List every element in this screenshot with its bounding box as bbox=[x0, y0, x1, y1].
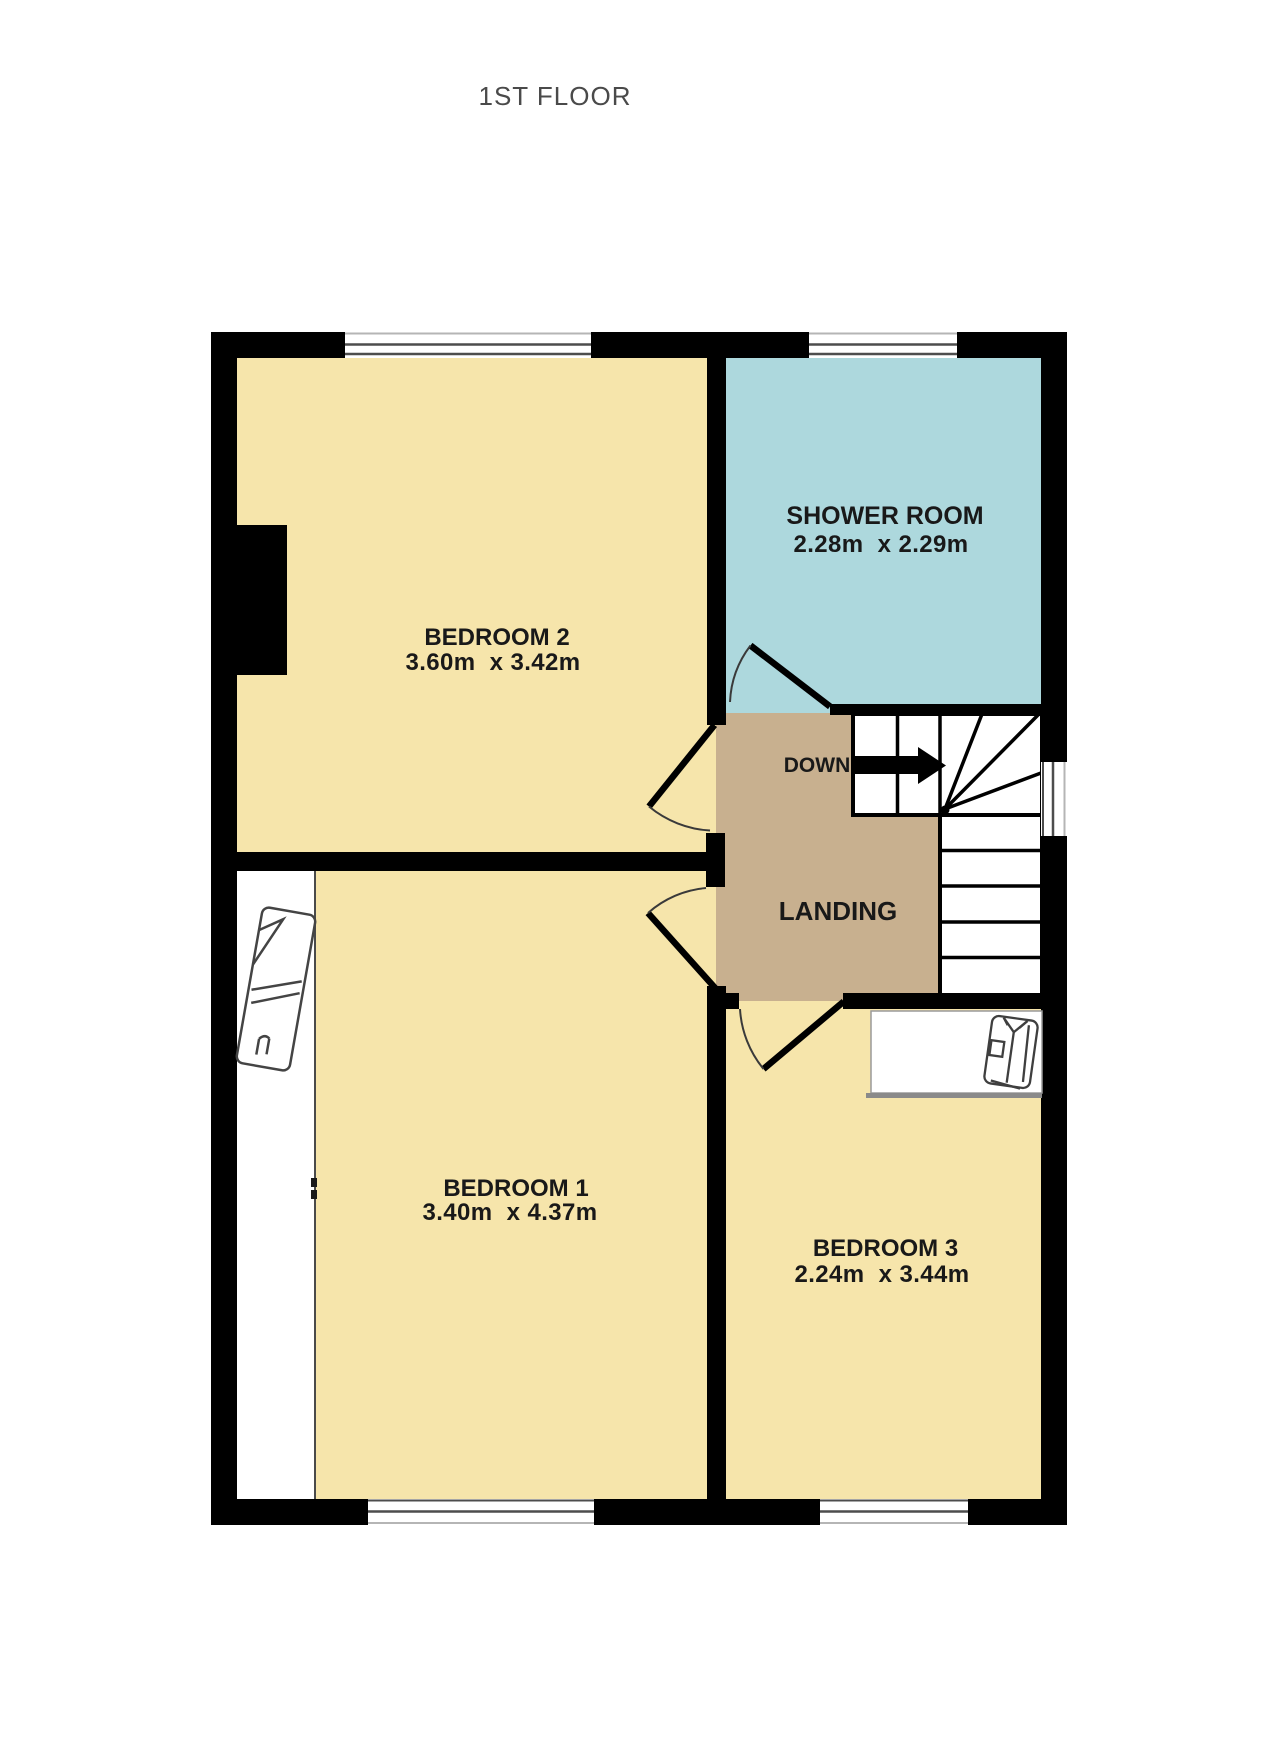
svg-text:BEDROOM 2: BEDROOM 2 bbox=[424, 624, 569, 651]
svg-text:3.60m x 3.42m: 3.60m x 3.42m bbox=[405, 649, 580, 676]
svg-text:2.24m x 3.44m: 2.24m x 3.44m bbox=[794, 1261, 969, 1288]
svg-text:2.28m x 2.29m: 2.28m x 2.29m bbox=[793, 531, 968, 558]
svg-text:BEDROOM 1: BEDROOM 1 bbox=[443, 1175, 588, 1202]
svg-text:SHOWER ROOM: SHOWER ROOM bbox=[786, 502, 983, 530]
svg-text:LANDING: LANDING bbox=[779, 896, 897, 926]
svg-text:1ST FLOOR: 1ST FLOOR bbox=[478, 81, 631, 111]
svg-text:DOWN: DOWN bbox=[784, 754, 851, 777]
svg-text:BEDROOM 3: BEDROOM 3 bbox=[813, 1235, 958, 1262]
svg-text:3.40m x 4.37m: 3.40m x 4.37m bbox=[422, 1199, 597, 1226]
